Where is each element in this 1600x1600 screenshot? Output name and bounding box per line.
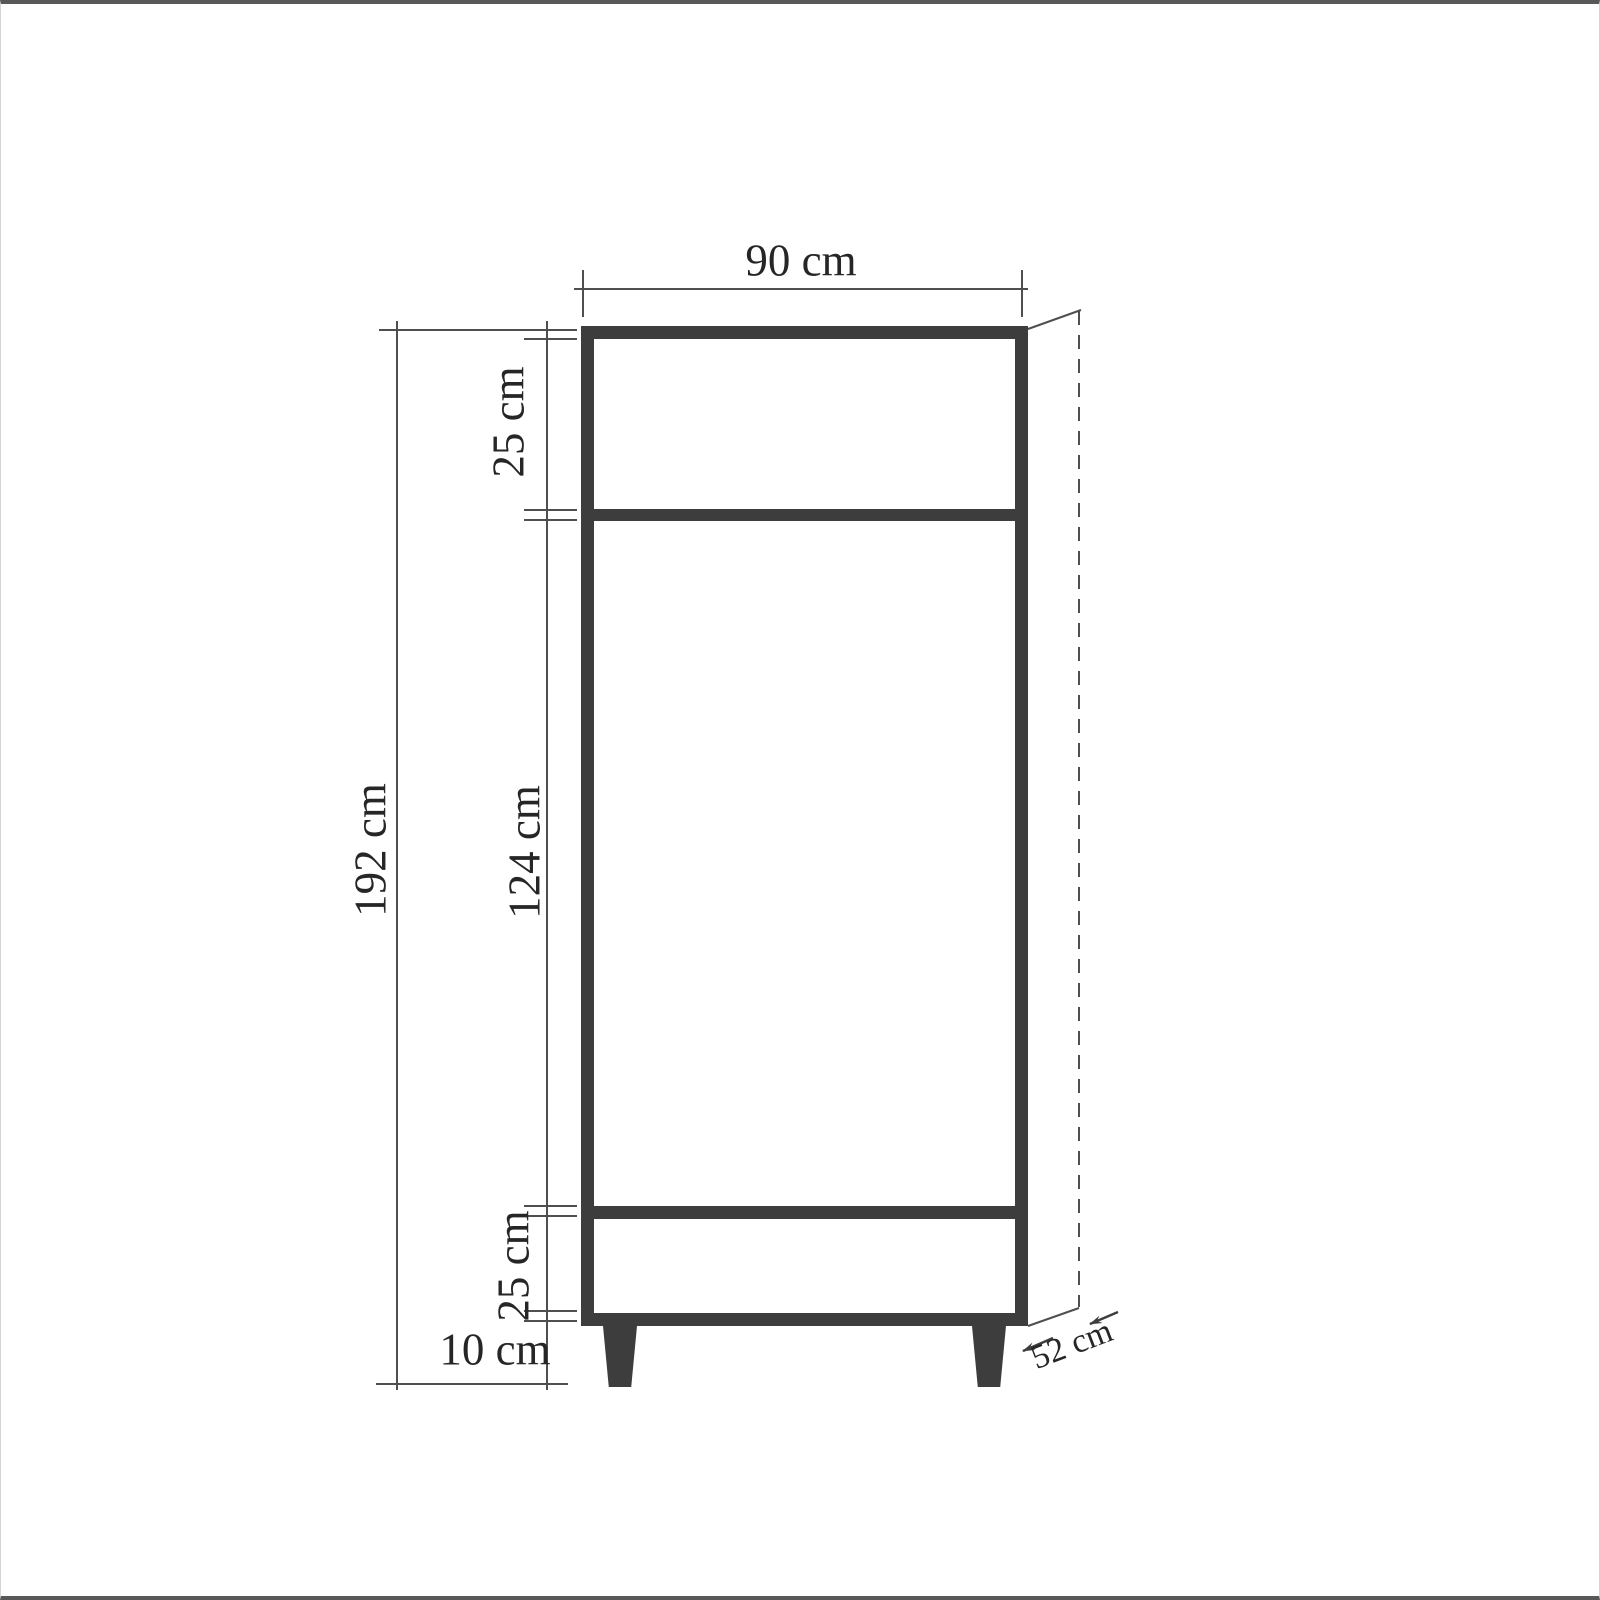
dim-label-middle-section: 124 cm (503, 785, 548, 919)
dim-label-total-height: 192 cm (349, 783, 394, 917)
dim-label-width: 90 cm (745, 239, 856, 284)
drawing-canvas: 90 cm 25 cm 124 cm 192 cm 25 cm 10 cm 52… (0, 0, 1600, 1600)
dim-label-upper-section: 25 cm (487, 366, 532, 477)
depth-diagonal-bottom (1028, 1308, 1079, 1326)
dim-label-drawer-section: 25 cm (492, 1210, 537, 1321)
depth-diagonal-top (1028, 310, 1081, 329)
dim-label-leg-height: 10 cm (439, 1328, 550, 1373)
